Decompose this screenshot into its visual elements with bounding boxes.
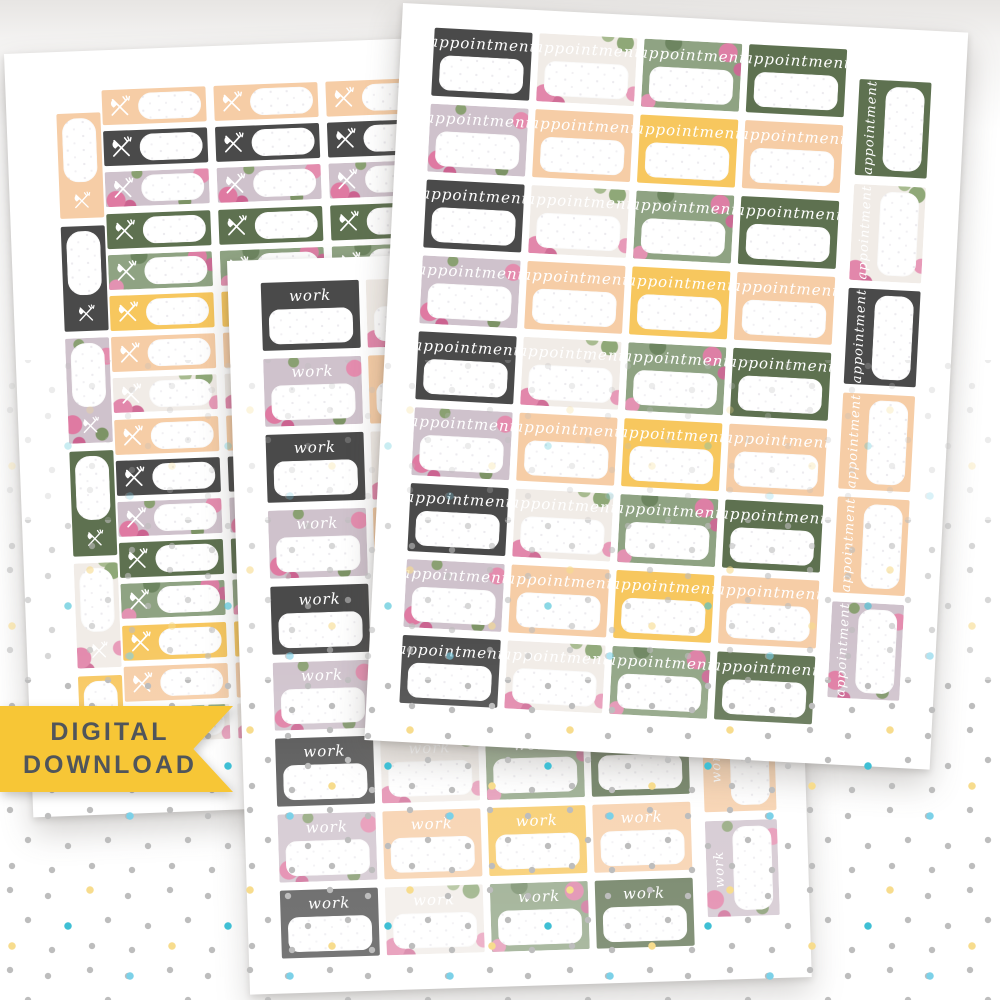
sticker-label: appointment (850, 183, 880, 280)
utensils-icon (75, 302, 98, 325)
sticker-writing-area (271, 383, 356, 421)
sticker-appointment-half-box: appointment (726, 424, 827, 497)
sticker-label: appointment (856, 79, 886, 176)
sticker-label: work (706, 820, 734, 917)
sticker-label: work (277, 812, 376, 842)
sticker-appointment-half-box: appointment (629, 266, 730, 339)
sticker-work-half-box: work (263, 356, 363, 427)
sticker-writing-area (393, 911, 478, 949)
sticker-writing-area (616, 673, 702, 712)
utensils-icon (117, 381, 145, 409)
sticker-label: appointment (839, 392, 869, 489)
sticker-work-half-box: work (261, 280, 361, 351)
utensils-icon (128, 669, 156, 697)
sticker-writing-area (495, 832, 580, 870)
sticker-appointment-side-box: appointment (844, 288, 921, 388)
banner-ribbon: DIGITAL DOWNLOAD (0, 706, 233, 792)
sticker-writing-area (250, 86, 314, 115)
sticker-writing-area (276, 535, 361, 573)
sticker-appointment-half-box: appointment (722, 500, 823, 573)
sticker-appointment-half-box: appointment (524, 261, 625, 334)
sticker-meal-strip (119, 539, 224, 578)
sticker-appointment-half-box: appointment (431, 28, 532, 101)
utensils-icon (218, 89, 246, 117)
sticker-writing-area (741, 299, 827, 338)
sticker-work-half-box: work (280, 888, 380, 959)
sticker-meal-side-box (74, 562, 122, 669)
sticker-appointment-half-box: appointment (528, 185, 629, 258)
utensils-icon (121, 505, 149, 533)
sticker-writing-area (150, 420, 214, 449)
utensils-icon (329, 84, 357, 112)
utensils-icon (331, 126, 359, 154)
sticker-meal-side-box (69, 450, 117, 557)
sticker-writing-area (431, 207, 517, 246)
sticker-writing-area (66, 230, 102, 295)
sticker-appointment-half-box: appointment (617, 494, 718, 567)
sticker-appointment-half-box: appointment (637, 115, 738, 188)
sticker-appointment-half-box: appointment (738, 196, 839, 269)
sticker-writing-area (729, 527, 815, 566)
sticker-writing-area (147, 337, 211, 366)
sticker-appointment-half-box: appointment (403, 559, 504, 632)
sticker-appointment-half-box: appointment (411, 407, 512, 480)
sticker-writing-area (435, 131, 521, 170)
sticker-meal-strip (114, 416, 219, 455)
sticker-writing-area (158, 626, 222, 655)
sticker-writing-area (498, 908, 583, 946)
sticker-appointment-half-box: appointment (742, 120, 843, 193)
sticker-writing-area (644, 142, 730, 181)
sticker-work-half-box: work (592, 802, 692, 873)
sticker-writing-area (419, 435, 505, 474)
utensils-icon (110, 217, 138, 245)
sticker-meal-strip (105, 169, 210, 208)
sticker-appointment-half-box: appointment (532, 109, 633, 182)
sticker-appointment-half-box: appointment (512, 489, 613, 562)
sticker-appointment-half-box: appointment (536, 33, 637, 106)
sticker-writing-area (512, 668, 598, 707)
sticker-work-half-box: work (595, 878, 695, 949)
sticker-appointment-side-box: appointment (833, 496, 910, 596)
sticker-writing-area (423, 359, 509, 398)
sticker-writing-area (865, 399, 908, 485)
sticker-writing-area (269, 307, 354, 345)
sticker-label: work (268, 508, 367, 538)
utensils-icon (118, 422, 146, 450)
sticker-work-half-box: work (382, 808, 482, 879)
sticker-writing-area (142, 214, 206, 243)
sticker-writing-area (62, 118, 98, 183)
sticker-writing-area (882, 86, 925, 172)
sticker-appointment-half-box: appointment (516, 413, 617, 486)
sticker-writing-area (620, 597, 706, 636)
sticker-writing-area (871, 295, 914, 381)
sticker-writing-area (283, 763, 368, 801)
sticker-writing-area (725, 603, 811, 642)
sticker-writing-area (79, 567, 115, 632)
sticker-writing-area (602, 905, 687, 943)
sticker-writing-area (390, 836, 475, 874)
sticker-appointment-half-box: appointment (641, 39, 742, 112)
utensils-icon (126, 628, 154, 656)
sticker-work-half-box: work (385, 884, 485, 955)
utensils-icon (333, 167, 361, 195)
sticker-meal-strip (108, 251, 213, 290)
sticker-label: work (273, 660, 372, 690)
sticker-appointment-half-box: appointment (399, 635, 500, 708)
sticker-appointment-side-box: appointment (849, 183, 926, 283)
sticker-label: work (280, 888, 379, 918)
sticker-writing-area (640, 218, 726, 257)
sticker-writing-area (427, 283, 513, 322)
sticker-writing-area (624, 521, 710, 560)
utensils-icon (112, 258, 140, 286)
sticker-meal-strip (213, 82, 318, 121)
sticker-appointment-side-box: appointment (855, 79, 932, 179)
sticker-writing-area (535, 212, 621, 251)
sticker-writing-area (139, 132, 203, 161)
sticker-writing-area (145, 296, 209, 325)
banner-text-download: DOWNLOAD (20, 749, 197, 782)
sticker-writing-area (407, 662, 493, 701)
sticker-meal-strip (113, 374, 218, 413)
sticker-work-half-box: work (277, 812, 377, 883)
sticker-appointment-side-box: appointment (827, 601, 904, 701)
sticker-writing-area (721, 679, 807, 718)
sticker-writing-area (753, 72, 839, 111)
sticker-writing-area (144, 255, 208, 284)
sticker-writing-area (253, 169, 317, 198)
sticker-label: work (265, 432, 364, 462)
sticker-label: work (263, 356, 362, 386)
sticker-work-side-box: work (705, 819, 780, 917)
sticker-label: work (385, 884, 484, 914)
sticker-meal-side-box (61, 225, 109, 332)
sticker-writing-area (745, 223, 831, 262)
sticker-writing-area (74, 455, 110, 520)
sticker-meal-side-box (65, 337, 113, 444)
sticker-label: work (490, 881, 589, 911)
utensils-icon (106, 93, 134, 121)
sticker-appointment-half-box: appointment (508, 564, 609, 637)
product-mockup: workworkworkworkworkworkworkworkworkwork… (0, 0, 1000, 1000)
sticker-label: work (261, 280, 360, 310)
sticker-appointment-half-box: appointment (423, 179, 524, 252)
sticker-appointment-half-box: appointment (633, 190, 734, 263)
sticker-appointment-half-box: appointment (609, 646, 710, 719)
sticker-label: work (382, 808, 481, 838)
sticker-appointment-half-box: appointment (714, 651, 815, 724)
sticker-meal-side-box (56, 112, 104, 219)
sticker-writing-area (157, 585, 221, 614)
sticker-meal-strip (111, 333, 216, 372)
sticker-label: work (592, 802, 691, 832)
sticker-appointment-half-box: appointment (734, 272, 835, 345)
sticker-writing-area (733, 451, 819, 490)
sticker-meal-strip (109, 292, 214, 331)
sticker-writing-area (598, 753, 683, 791)
sticker-writing-area (153, 502, 217, 531)
sticker-meal-strip (122, 621, 227, 660)
sticker-writing-area (531, 288, 617, 327)
utensils-icon (114, 299, 142, 327)
utensils-icon (83, 527, 106, 550)
sticker-writing-area (273, 459, 358, 497)
sticker-writing-area (632, 370, 718, 409)
sticker-writing-area (516, 592, 602, 631)
sticker-work-half-box: work (265, 432, 365, 503)
sticker-writing-area (749, 147, 835, 186)
sticker-label: appointment (845, 288, 875, 385)
sticker-writing-area (438, 55, 524, 94)
sticker-meal-strip (106, 210, 211, 249)
utensils-icon (125, 587, 153, 615)
sticker-meal-strip (117, 498, 222, 537)
sticker-label: appointment (828, 601, 858, 698)
sticker-work-half-box: work (268, 508, 368, 579)
sticker-meal-strip (124, 663, 229, 702)
sticker-work-half-box: work (275, 736, 375, 807)
sticker-writing-area (278, 611, 363, 649)
utensils-icon (79, 415, 102, 438)
utensils-icon (334, 208, 362, 236)
sticker-meal-strip (101, 86, 206, 125)
sticker-appointment-half-box: appointment (504, 640, 605, 713)
sticker-work-half-box: work (270, 584, 370, 655)
sticker-sheet-appointment: appointmentappointmentappointmentappoint… (364, 3, 968, 770)
sticker-writing-area (288, 915, 373, 953)
utensils-icon (123, 546, 151, 574)
sticker-writing-area (628, 445, 714, 484)
utensils-icon (109, 175, 137, 203)
sticker-writing-area (648, 66, 734, 105)
sticker-work-half-box: work (273, 660, 373, 731)
sticker-label: work (595, 878, 694, 908)
sticker-writing-area (415, 510, 501, 549)
sticker-meal-strip (217, 164, 322, 203)
sticker-writing-area (737, 375, 823, 414)
banner-text-digital: DIGITAL (47, 716, 169, 749)
sticker-writing-area (860, 504, 903, 590)
sticker-writing-area (388, 760, 473, 798)
digital-download-banner: DIGITAL DOWNLOAD (0, 706, 233, 792)
sticker-appointment-half-box: appointment (520, 337, 621, 410)
sticker-writing-area (70, 342, 106, 407)
sticker-appointment-half-box: appointment (419, 255, 520, 328)
sticker-writing-area (636, 294, 722, 333)
sticker-writing-area (543, 61, 629, 100)
sticker-work-half-box: work (487, 805, 587, 876)
sticker-writing-area (876, 191, 919, 277)
sticker-meal-strip (116, 457, 221, 496)
sticker-appointment-side-box: appointment (838, 392, 915, 492)
sticker-meal-strip (215, 123, 320, 162)
utensils-icon (70, 190, 93, 213)
sticker-meal-strip (103, 127, 208, 166)
sticker-writing-area (251, 127, 315, 156)
sticker-writing-area (160, 667, 224, 696)
sticker-writing-area (280, 687, 365, 725)
sticker-writing-area (519, 516, 605, 555)
sticker-appointment-half-box: appointment (730, 348, 831, 421)
sticker-appointment-half-box: appointment (718, 575, 819, 648)
sticker-writing-area (493, 756, 578, 794)
sticker-appointment-half-box: appointment (613, 570, 714, 643)
sticker-writing-area (527, 364, 613, 403)
sticker-work-half-box: work (490, 881, 590, 952)
sticker-label: appointment (834, 496, 864, 593)
utensils-icon (115, 340, 143, 368)
sticker-meal-strip (218, 205, 323, 244)
utensils-icon (219, 130, 247, 158)
sticker-writing-area (141, 173, 205, 202)
sticker-writing-area (539, 136, 625, 175)
utensils-icon (88, 639, 111, 662)
sticker-writing-area (152, 461, 216, 490)
sticker-meal-strip (120, 580, 225, 619)
sticker-label: work (275, 736, 374, 766)
sticker-label: work (487, 805, 586, 835)
sticker-label: work (270, 584, 369, 614)
sticker-writing-area (732, 825, 774, 910)
sticker-writing-area (855, 608, 898, 694)
utensils-icon (120, 464, 148, 492)
sticker-writing-area (149, 379, 213, 408)
sticker-writing-area (523, 440, 609, 479)
utensils-icon (222, 212, 250, 240)
sticker-writing-area (285, 839, 370, 877)
utensils-icon (107, 134, 135, 162)
utensils-icon (221, 171, 249, 199)
sticker-appointment-half-box: appointment (407, 483, 508, 556)
sticker-writing-area (600, 829, 685, 867)
sticker-writing-area (138, 90, 202, 119)
sticker-appointment-half-box: appointment (621, 418, 722, 491)
sticker-appointment-half-box: appointment (427, 104, 528, 177)
sticker-appointment-half-box: appointment (625, 342, 726, 415)
sticker-writing-area (155, 543, 219, 572)
sticker-appointment-half-box: appointment (746, 44, 847, 117)
sticker-appointment-half-box: appointment (415, 331, 516, 404)
sticker-writing-area (254, 210, 318, 239)
sticker-writing-area (411, 586, 497, 625)
